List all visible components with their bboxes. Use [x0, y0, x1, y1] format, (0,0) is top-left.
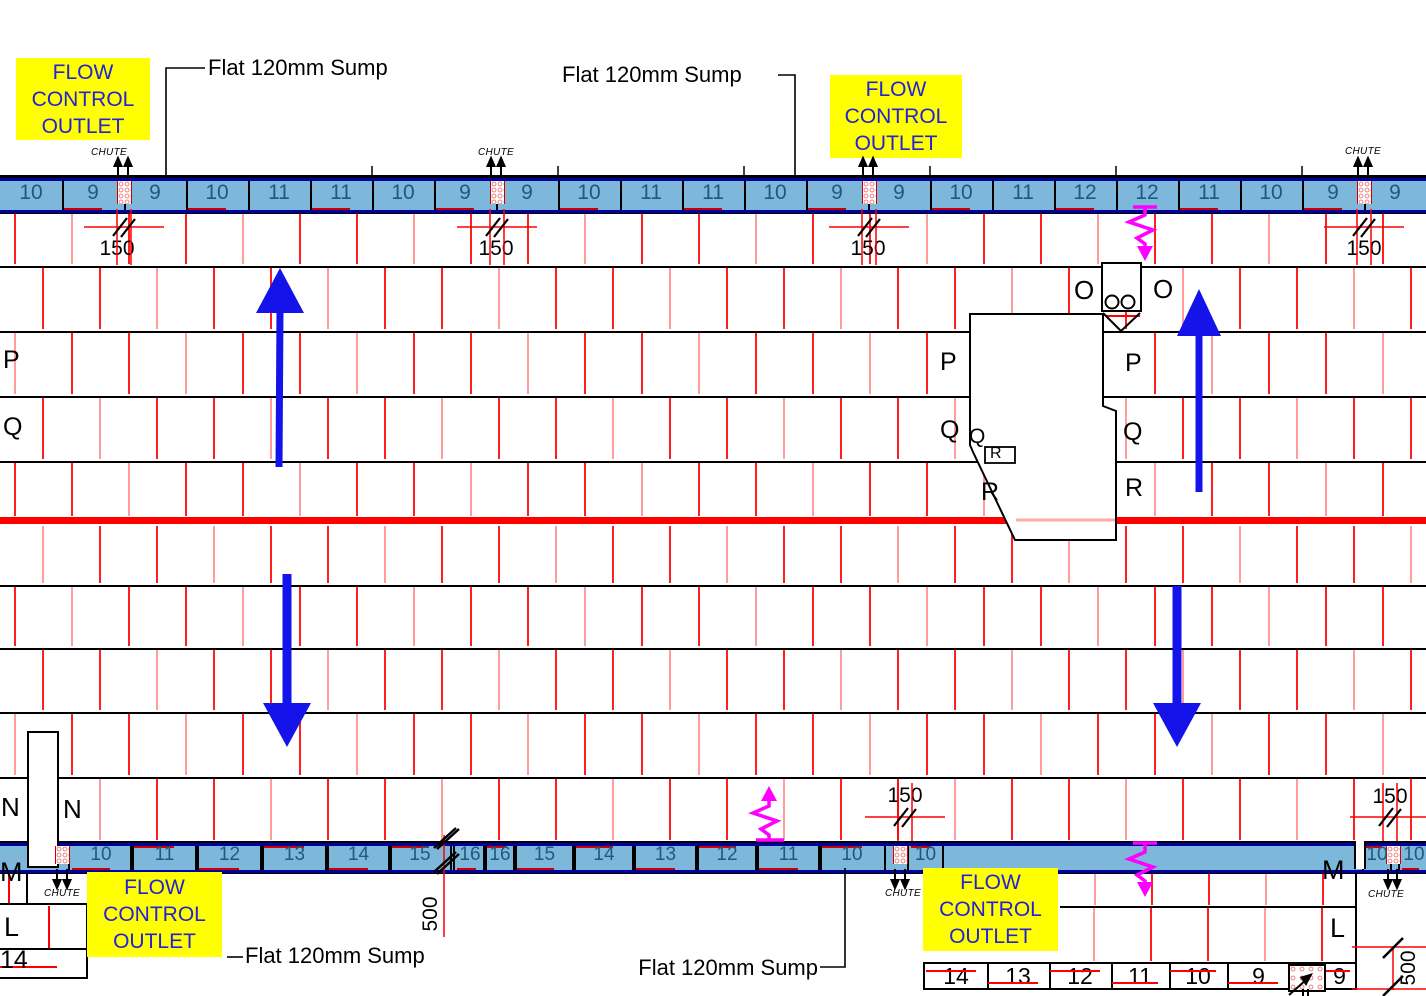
bay-divider: [498, 268, 500, 329]
bay-divider: [1094, 868, 1096, 905]
bay-divider: [498, 398, 500, 459]
bay-divider: [641, 714, 643, 775]
bay-divider: [527, 463, 529, 516]
bay-divider: [99, 779, 101, 840]
bay-divider: [840, 779, 842, 840]
bay-divider: [726, 650, 728, 710]
bay-count-cell: 10: [1398, 846, 1426, 870]
bay-divider: [441, 398, 443, 459]
bay-divider: [1097, 333, 1099, 394]
bay-divider: [1011, 398, 1013, 459]
bay-divider: [1325, 333, 1327, 394]
bay-number-14: 14: [0, 948, 28, 973]
bay-divider: [185, 587, 187, 646]
drainage-plan-drawing: 10991011111099101111109910111212111099 1…: [0, 0, 1426, 996]
row-letter-q: Q: [1123, 420, 1142, 445]
bay-divider: [356, 333, 358, 394]
bay-divider: [356, 714, 358, 775]
bay-divider: [498, 650, 500, 710]
bay-divider: [1182, 398, 1184, 459]
sump-annotation: Flat 120mm Sump: [245, 943, 425, 969]
bay-divider: [1068, 526, 1070, 583]
bay-divider: [954, 650, 956, 710]
bay-count-cell: 10: [0, 181, 64, 210]
dim-150: 150: [845, 237, 891, 261]
bay-divider: [527, 714, 529, 775]
bay-divider: [327, 268, 329, 329]
bay-divider: [242, 714, 244, 775]
bay-divider: [869, 714, 871, 775]
bay-divider: [669, 398, 671, 459]
bay-divider: [384, 650, 386, 710]
bay-divider: [555, 268, 557, 329]
bay-divider: [498, 779, 500, 840]
bay-divider: [1268, 714, 1270, 775]
bay-divider: [926, 587, 928, 646]
sump-pit-box: [1102, 263, 1141, 311]
row-letter-r: R: [1125, 476, 1143, 501]
bay-divider: [612, 398, 614, 459]
bay-count-cell: 11: [310, 181, 374, 210]
bay-divider: [1325, 463, 1327, 516]
bay-divider: [783, 398, 785, 459]
bay-count-cell: 11: [248, 181, 312, 210]
bay-count-cell: 11: [130, 846, 199, 870]
end-bay-number: 9: [1227, 964, 1292, 988]
bay-divider: [983, 587, 985, 646]
bay-count-cell: 9: [496, 181, 560, 210]
top-bay-count-bar: 10991011111099101111109910111212111099: [0, 178, 1426, 213]
bay-divider: [1207, 908, 1209, 961]
bay-divider: [1382, 463, 1384, 516]
row-letter-q: Q: [969, 426, 985, 447]
bay-divider: [1011, 268, 1013, 329]
bay-count-cell: 11: [682, 181, 746, 210]
bay-divider: [1410, 650, 1412, 710]
pit-vee-right: [1121, 313, 1140, 331]
bay-divider: [14, 587, 16, 646]
bay-divider: [71, 207, 73, 264]
bay-divider: [669, 650, 671, 710]
row-letter-n: N: [63, 796, 82, 822]
flow-control-outlet-box: FLOW CONTROL OUTLET: [830, 75, 962, 158]
bay-divider: [1325, 714, 1327, 775]
row-letter-o: O: [1153, 276, 1173, 302]
bay-divider: [413, 463, 415, 516]
bay-divider: [213, 268, 215, 329]
bay-count-cell: 12: [695, 846, 759, 870]
row-letter-l: L: [4, 914, 19, 941]
bay-divider: [869, 587, 871, 646]
bay-count-cell: 13: [632, 846, 699, 870]
bay-divider: [71, 587, 73, 646]
bay-divider: [1211, 714, 1213, 775]
bay-divider: [1325, 587, 1327, 646]
row-letter-p: P: [1125, 351, 1142, 376]
bay-count-cell: 10: [68, 846, 134, 870]
bay-divider: [1151, 868, 1153, 905]
bay-divider: [1182, 526, 1184, 583]
bay-divider: [299, 587, 301, 646]
bay-divider: [128, 714, 130, 775]
pit-circle-left: [1106, 296, 1119, 309]
row-letter-p: P: [940, 350, 957, 375]
bay-divider: [1154, 333, 1156, 394]
row-letter-q: Q: [940, 418, 959, 443]
bay-divider: [1182, 779, 1184, 840]
chute-hatch: [1357, 181, 1372, 204]
bay-divider: [1268, 463, 1270, 516]
bay-count-cell: 11: [755, 846, 822, 870]
bay-divider: [555, 650, 557, 710]
bay-divider: [299, 463, 301, 516]
bay-divider: [1211, 207, 1213, 264]
bay-divider: [1382, 333, 1384, 394]
bay-divider: [555, 779, 557, 840]
bay-divider: [641, 207, 643, 264]
bay-divider: [1211, 587, 1213, 646]
bay-divider: [242, 587, 244, 646]
bay-count-cell: 15: [513, 846, 576, 870]
bay-divider: [954, 779, 956, 840]
bay-divider: [270, 268, 272, 329]
bay-divider: [1125, 779, 1127, 840]
end-bay-number: 13: [987, 964, 1051, 988]
bay-divider: [42, 526, 44, 583]
dim-150: 150: [94, 237, 140, 261]
bay-divider: [1410, 398, 1412, 459]
bay-divider: [1150, 908, 1152, 961]
bay-divider: [356, 207, 358, 264]
bay-divider: [270, 779, 272, 840]
bay-divider: [99, 526, 101, 583]
bay-divider: [14, 463, 16, 516]
chute-label: CHUTE: [881, 888, 925, 899]
bay-divider: [441, 650, 443, 710]
flow-control-outlet-box: FLOW CONTROL OUTLET: [87, 872, 222, 957]
bay-divider: [954, 526, 956, 583]
bay-divider: [270, 398, 272, 459]
bay-divider: [1040, 587, 1042, 646]
bay-divider: [242, 333, 244, 394]
bay-divider: [1125, 650, 1127, 710]
bay-divider: [1296, 398, 1298, 459]
bay-count-cell: 15: [388, 846, 452, 870]
row-letter-o: O: [1074, 277, 1094, 303]
bay-divider: [1239, 268, 1241, 329]
row-letter-p: P: [3, 348, 20, 373]
bay-divider: [1011, 779, 1013, 840]
bay-divider: [584, 333, 586, 394]
bay-divider: [185, 463, 187, 516]
bay-divider: [1239, 779, 1241, 840]
bay-divider: [470, 207, 472, 264]
bay-divider: [413, 207, 415, 264]
bay-divider: [755, 463, 757, 516]
bay-divider: [755, 587, 757, 646]
bay-count-cell: 12: [1116, 181, 1180, 210]
bay-count-cell: 14: [572, 846, 636, 870]
bay-divider: [99, 650, 101, 710]
bay-divider: [1382, 714, 1384, 775]
bay-divider: [384, 268, 386, 329]
bay-divider: [783, 650, 785, 710]
bay-divider: [1296, 526, 1298, 583]
bay-count-cell: 10: [372, 181, 436, 210]
bay-divider: [1268, 587, 1270, 646]
pit-vee-left: [1103, 313, 1121, 331]
bay-divider: [14, 207, 16, 264]
flow-control-outlet-box: FLOW CONTROL OUTLET: [16, 58, 150, 140]
bay-divider: [299, 333, 301, 394]
bay-divider: [1125, 268, 1127, 329]
bay-divider: [527, 333, 529, 394]
bay-divider: [213, 779, 215, 840]
bay-divider: [242, 463, 244, 516]
bay-divider: [42, 650, 44, 710]
bay-divider: [926, 207, 928, 264]
bay-bar-segment: [940, 846, 1354, 870]
bay-divider: [1154, 587, 1156, 646]
bay-divider: [185, 714, 187, 775]
bay-divider: [1211, 463, 1213, 516]
bay-divider: [612, 526, 614, 583]
bay-divider: [1265, 868, 1267, 905]
bay-count-cell: 16: [483, 846, 517, 870]
bay-count-cell: 9: [124, 181, 188, 210]
bay-divider: [185, 207, 187, 264]
sump-annotation: Flat 120mm Sump: [608, 955, 818, 981]
bay-divider: [384, 526, 386, 583]
bay-divider: [584, 463, 586, 516]
bay-divider: [1296, 779, 1298, 840]
bay-count-cell: 12: [195, 846, 264, 870]
chute-label: CHUTE: [1364, 889, 1408, 900]
dim-500: 500: [1397, 945, 1421, 991]
bay-hatch-square: [1288, 964, 1326, 992]
bay-divider: [926, 333, 928, 394]
dim-150: 150: [473, 237, 519, 261]
bay-divider: [840, 650, 842, 710]
bay-divider: [1182, 650, 1184, 710]
bay-divider: [1093, 908, 1095, 961]
bay-divider: [612, 650, 614, 710]
dim-150: 150: [1341, 237, 1387, 261]
bay-divider: [156, 650, 158, 710]
row-letter-r: R: [981, 480, 999, 505]
bay-divider: [612, 779, 614, 840]
bay-divider: [156, 779, 158, 840]
bay-divider: [812, 463, 814, 516]
bay-divider: [669, 268, 671, 329]
bay-divider: [840, 268, 842, 329]
bay-divider: [527, 207, 529, 264]
bay-count-cell: 9: [434, 181, 498, 210]
bay-divider: [327, 398, 329, 459]
bay-count-cell: 10: [930, 181, 994, 210]
bay-divider: [413, 714, 415, 775]
bay-divider: [1353, 526, 1355, 583]
bay-count-cell: 12: [1054, 181, 1118, 210]
dim-500: 500: [419, 891, 443, 937]
bay-divider: [840, 526, 842, 583]
bay-divider: [327, 779, 329, 840]
bay-divider: [1040, 207, 1042, 264]
bottom-bay-count-bar: 1011121314151616151413121110101010: [0, 843, 1426, 873]
bay-divider: [128, 333, 130, 394]
chute-hatch: [862, 181, 877, 204]
chute-hatch: [893, 846, 908, 864]
bay-count-cell: 11: [1178, 181, 1242, 210]
bay-divider: [726, 526, 728, 583]
chute-label: CHUTE: [40, 888, 84, 899]
bay-divider: [213, 398, 215, 459]
bay-divider: [1264, 908, 1266, 961]
bay-divider: [584, 207, 586, 264]
chute-hatch: [117, 181, 132, 204]
bay-divider: [983, 207, 985, 264]
red-datum-line: [0, 517, 1426, 524]
bay-divider: [1154, 714, 1156, 775]
bay-divider: [812, 714, 814, 775]
end-bay-number: 9: [1324, 964, 1355, 988]
bay-divider: [1068, 398, 1070, 459]
bay-divider: [897, 398, 899, 459]
end-bay-number: 12: [1049, 964, 1113, 988]
chute-label: CHUTE: [474, 147, 518, 158]
bay-count-cell: 11: [620, 181, 684, 210]
bay-divider: [698, 587, 700, 646]
row-letter-n: N: [1, 794, 20, 820]
bay-divider: [1321, 908, 1323, 961]
bay-divider: [527, 587, 529, 646]
bay-divider: [698, 714, 700, 775]
bay-divider: [840, 398, 842, 459]
bay-count-cell: 10: [744, 181, 808, 210]
pit-circle-right: [1122, 296, 1135, 309]
bay-count-cell: 10: [818, 846, 886, 870]
bay-divider: [783, 268, 785, 329]
end-bay-number: 14: [925, 964, 989, 988]
bay-divider: [726, 779, 728, 840]
bay-divider: [812, 587, 814, 646]
bay-divider: [213, 526, 215, 583]
bay-divider: [669, 779, 671, 840]
bay-divider: [156, 268, 158, 329]
bay-divider: [185, 333, 187, 394]
chute-label: CHUTE: [87, 147, 131, 158]
bay-divider: [584, 587, 586, 646]
bay-divider: [156, 526, 158, 583]
row-letter-m: M: [0, 859, 23, 886]
sump-annotation: Flat 120mm Sump: [208, 55, 388, 81]
bay-divider: [356, 463, 358, 516]
bay-divider: [1239, 526, 1241, 583]
dim-150: 150: [882, 784, 928, 808]
bay-divider: [1268, 207, 1270, 264]
bay-divider: [71, 714, 73, 775]
bay-divider: [1011, 650, 1013, 710]
chute-hatch: [55, 846, 70, 864]
end-bay-number: 10: [1169, 964, 1229, 988]
row-letter-r: R: [990, 446, 1002, 462]
bay-divider: [755, 207, 757, 264]
bay-divider: [71, 333, 73, 394]
bay-divider: [1040, 714, 1042, 775]
bar-break-gap: [1354, 841, 1366, 869]
bay-divider: [1068, 650, 1070, 710]
dim-150: 150: [1367, 785, 1413, 809]
bay-count-cell: 16: [453, 846, 487, 870]
bay-divider: [1239, 650, 1241, 710]
bay-divider: [1125, 526, 1127, 583]
bay-divider: [698, 207, 700, 264]
bay-divider: [1296, 268, 1298, 329]
bay-divider: [1182, 268, 1184, 329]
row-letter-q: Q: [3, 415, 22, 440]
bay-divider: [555, 398, 557, 459]
bay-divider: [1353, 779, 1355, 840]
bay-divider: [641, 587, 643, 646]
bay-divider: [1040, 333, 1042, 394]
circulation-arrows: [256, 268, 1221, 747]
bay-divider: [1296, 650, 1298, 710]
bay-divider: [1068, 268, 1070, 329]
bay-count-cell: 10: [907, 846, 944, 870]
bay-divider: [1353, 398, 1355, 459]
bay-divider: [156, 398, 158, 459]
row-letter-l: L: [1330, 915, 1345, 942]
bay-divider: [441, 526, 443, 583]
row-letter-m: M: [1322, 857, 1345, 884]
chute-label: CHUTE: [1341, 146, 1385, 157]
bay-divider: [555, 526, 557, 583]
bay-count-cell: 10: [1362, 846, 1392, 870]
bay-divider: [1211, 333, 1213, 394]
bay-divider: [897, 268, 899, 329]
bay-divider: [698, 333, 700, 394]
bay-divider: [470, 333, 472, 394]
bay-divider: [1325, 207, 1327, 264]
bay-divider: [1154, 207, 1156, 264]
bay-divider: [270, 526, 272, 583]
bay-count-cell: 9: [868, 181, 932, 210]
bay-divider: [983, 714, 985, 775]
bay-count-cell: 10: [186, 181, 250, 210]
bay-divider: [1068, 779, 1070, 840]
bay-divider: [869, 463, 871, 516]
bay-divider: [242, 207, 244, 264]
bay-divider: [1097, 714, 1099, 775]
bay-divider: [1040, 463, 1042, 516]
bay-divider: [327, 650, 329, 710]
bay-divider: [299, 207, 301, 264]
bay-divider: [812, 333, 814, 394]
bay-divider: [1382, 587, 1384, 646]
bay-divider: [270, 650, 272, 710]
bay-divider: [926, 714, 928, 775]
bay-divider: [1154, 463, 1156, 516]
bay-divider: [755, 333, 757, 394]
bay-divider: [470, 714, 472, 775]
bay-divider: [1011, 526, 1013, 583]
bay-divider: [470, 463, 472, 516]
bay-divider: [926, 463, 928, 516]
bay-divider: [669, 526, 671, 583]
bay-divider: [14, 714, 16, 775]
bay-count-cell: 13: [260, 846, 329, 870]
bay-divider: [498, 526, 500, 583]
